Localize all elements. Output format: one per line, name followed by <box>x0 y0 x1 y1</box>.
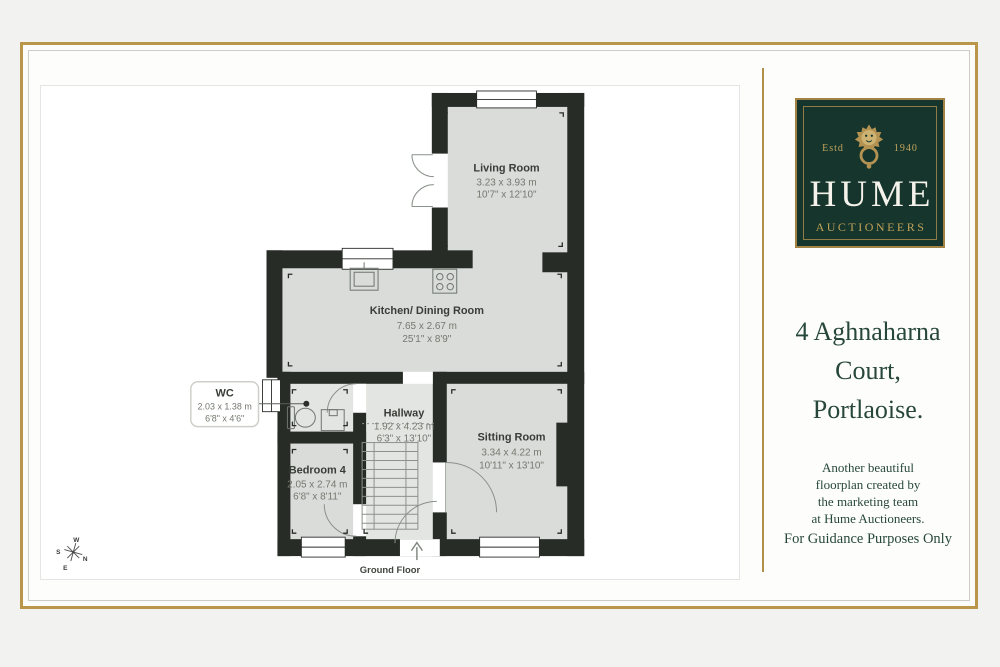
sitting-room-name: Sitting Room <box>477 432 545 444</box>
hallway-metric: 1.92 x 4.23 m <box>374 422 434 433</box>
brand-logo-inner: Estd 1940 HUME AUCTIONEERS <box>803 106 937 240</box>
compass-icon: W S N E <box>56 537 88 572</box>
kitchen-imperial: 25'1" x 8'9" <box>402 334 451 345</box>
hallway-name: Hallway <box>384 408 426 420</box>
tagline-line-1: Another beautiful <box>768 459 968 476</box>
fireplace-projection <box>556 423 569 487</box>
tagline-line-4: at Hume Auctioneers. <box>768 510 968 527</box>
wc-metric: 2.03 x 1.38 m <box>198 402 252 412</box>
sitting-room-imperial: 10'11" x 13'10" <box>479 460 544 471</box>
sitting-room-metric: 3.34 x 4.22 m <box>481 448 541 459</box>
estd-label: Estd <box>822 143 844 154</box>
compass-n: N <box>83 556 88 563</box>
sitting-room-label: Sitting Room 3.34 x 4.22 m 10'11" x 13'1… <box>477 432 545 472</box>
bedroom4-name: Bedroom 4 <box>289 464 347 476</box>
floorplan: Living Room 3.23 x 3.93 m 10'7" x 12'10"… <box>41 86 739 579</box>
living-room-name: Living Room <box>473 163 540 175</box>
living-room-double-door <box>412 155 434 207</box>
tagline-line-3: the marketing team <box>768 493 968 510</box>
wc-callout-anchor-dot <box>303 401 309 407</box>
wc-name: WC <box>216 388 234 400</box>
brand-subtitle: AUCTIONEERS <box>816 220 927 235</box>
kitchen-metric: 7.65 x 2.67 m <box>397 321 457 332</box>
living-room-imperial: 10'7" x 12'10" <box>477 190 538 201</box>
wc-imperial: 6'8" x 4'6" <box>205 414 244 424</box>
living-room-label: Living Room 3.23 x 3.93 m 10'7" x 12'10" <box>473 163 540 201</box>
estd-year: 1940 <box>894 143 918 154</box>
address-line-3: Portlaoise. <box>768 390 968 429</box>
bedroom4-label: Bedroom 4 2.05 x 2.74 m 6'8" x 8'11" <box>287 464 347 502</box>
brand-logo: Estd 1940 HUME AUCTIONEERS <box>795 98 945 248</box>
bedroom4-imperial: 6'8" x 8'11" <box>293 491 342 502</box>
hallway-imperial: 6'3" x 13'10" <box>377 434 432 445</box>
property-address: 4 Aghnaharna Court, Portlaoise. <box>768 312 968 429</box>
address-line-2: Court, <box>768 351 968 390</box>
brand-name: HUME <box>810 176 935 213</box>
bedroom4-metric: 2.05 x 2.74 m <box>287 479 347 490</box>
kitchen-floor <box>274 260 577 378</box>
compass-s: S <box>56 549 61 556</box>
vertical-divider <box>762 68 764 572</box>
marketing-tagline: Another beautiful floorplan created by t… <box>768 459 968 527</box>
page: Living Room 3.23 x 3.93 m 10'7" x 12'10"… <box>0 0 1000 667</box>
kitchen-name: Kitchen/ Dining Room <box>370 305 485 317</box>
guidance-note: For Guidance Purposes Only <box>758 531 978 548</box>
lion-knocker-icon <box>853 123 885 173</box>
floorplan-card: Living Room 3.23 x 3.93 m 10'7" x 12'10"… <box>40 85 740 580</box>
compass-w: W <box>73 537 80 544</box>
tagline-line-2: floorplan created by <box>768 476 968 493</box>
compass-e: E <box>63 565 68 572</box>
estd-row: Estd 1940 <box>822 123 918 173</box>
floor-label: Ground Floor <box>360 565 421 576</box>
address-line-1: 4 Aghnaharna <box>768 312 968 351</box>
living-room-metric: 3.23 x 3.93 m <box>476 178 536 189</box>
